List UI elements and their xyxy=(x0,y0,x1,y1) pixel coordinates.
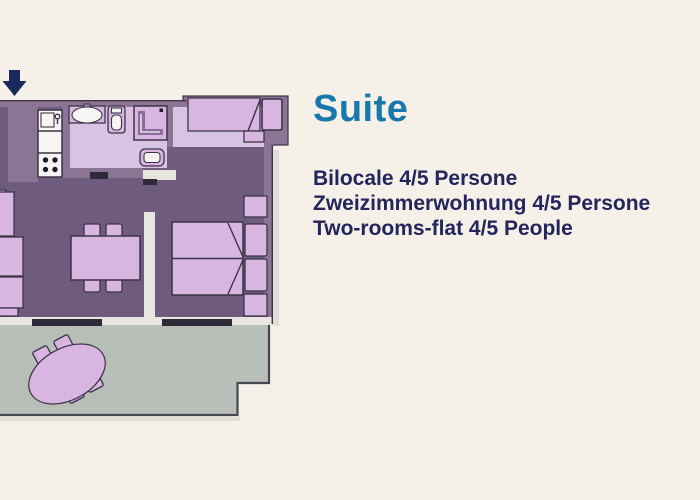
dining-chair xyxy=(84,279,100,292)
kitchen xyxy=(38,110,62,177)
dining-table xyxy=(71,236,140,280)
bedroom-door xyxy=(143,179,157,185)
entrance-arrow-icon xyxy=(3,70,27,96)
shower-drain xyxy=(160,109,164,113)
washbasin xyxy=(72,107,102,123)
dining-chair xyxy=(84,224,100,237)
plan-shadow-bottom xyxy=(0,417,240,421)
toilet-tank xyxy=(112,108,122,113)
toilet-bowl xyxy=(112,115,122,130)
double-bed-pillow xyxy=(245,224,267,256)
wall-bedroom-top xyxy=(143,170,176,180)
sofa-cushion xyxy=(0,192,14,236)
dining-chair xyxy=(106,279,122,292)
nightstand xyxy=(244,196,267,217)
description-line-italian: Bilocale 4/5 Persone xyxy=(313,166,650,191)
wall-bedroom-divider xyxy=(144,212,155,317)
page: Suite Bilocale 4/5 Persone Zweizimmerwoh… xyxy=(0,0,700,500)
terrace-door-left xyxy=(32,319,102,326)
description: Bilocale 4/5 Persone Zweizimmerwohnung 4… xyxy=(313,166,650,241)
double-bed-pillow xyxy=(245,259,267,291)
page-title: Suite xyxy=(313,90,408,128)
single-bed-blanket xyxy=(244,131,264,142)
sofa-cushion xyxy=(0,308,18,316)
burner xyxy=(52,167,57,172)
bidet-bowl xyxy=(144,153,160,163)
wall-entry-block xyxy=(8,107,38,182)
terrace-door-right xyxy=(162,319,232,326)
dining-chair xyxy=(106,224,122,237)
nightstand xyxy=(244,294,267,316)
single-bed-pillow xyxy=(262,99,282,130)
burner xyxy=(43,157,48,162)
bathroom-door xyxy=(90,172,108,179)
plan-shadow-right xyxy=(273,150,279,326)
burner xyxy=(43,167,48,172)
floor-plan xyxy=(0,60,300,425)
sofa-cushion xyxy=(0,237,23,276)
burner xyxy=(52,157,57,162)
terrace xyxy=(0,325,270,416)
description-line-english: Two-rooms-flat 4/5 People xyxy=(313,216,650,241)
kitchen-sink xyxy=(41,113,54,127)
sofa-cushion xyxy=(0,277,23,308)
wall-niche-divider xyxy=(167,107,173,147)
description-line-german: Zweizimmerwohnung 4/5 Persone xyxy=(313,191,650,216)
